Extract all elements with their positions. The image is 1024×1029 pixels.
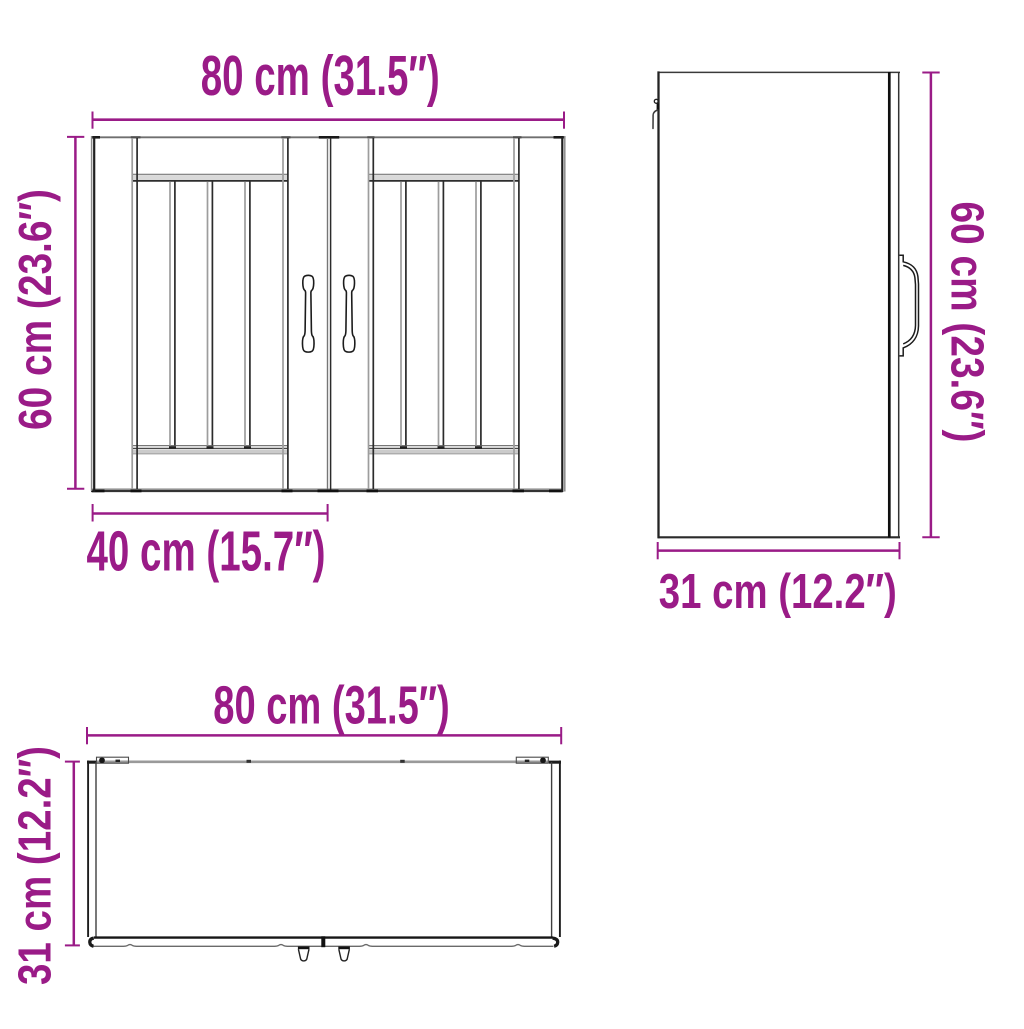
svg-text:60 cm (23.6″): 60 cm (23.6″) [942, 202, 994, 443]
svg-text:31 cm (12.2″): 31 cm (12.2″) [659, 565, 897, 619]
svg-text:31 cm (12.2″): 31 cm (12.2″) [9, 746, 61, 985]
svg-text:60 cm (23.6″): 60 cm (23.6″) [9, 189, 61, 430]
svg-text:40 cm (15.7″): 40 cm (15.7″) [87, 520, 326, 584]
svg-text:80 cm (31.5″): 80 cm (31.5″) [201, 44, 440, 108]
svg-text:80 cm (31.5″): 80 cm (31.5″) [213, 676, 450, 735]
